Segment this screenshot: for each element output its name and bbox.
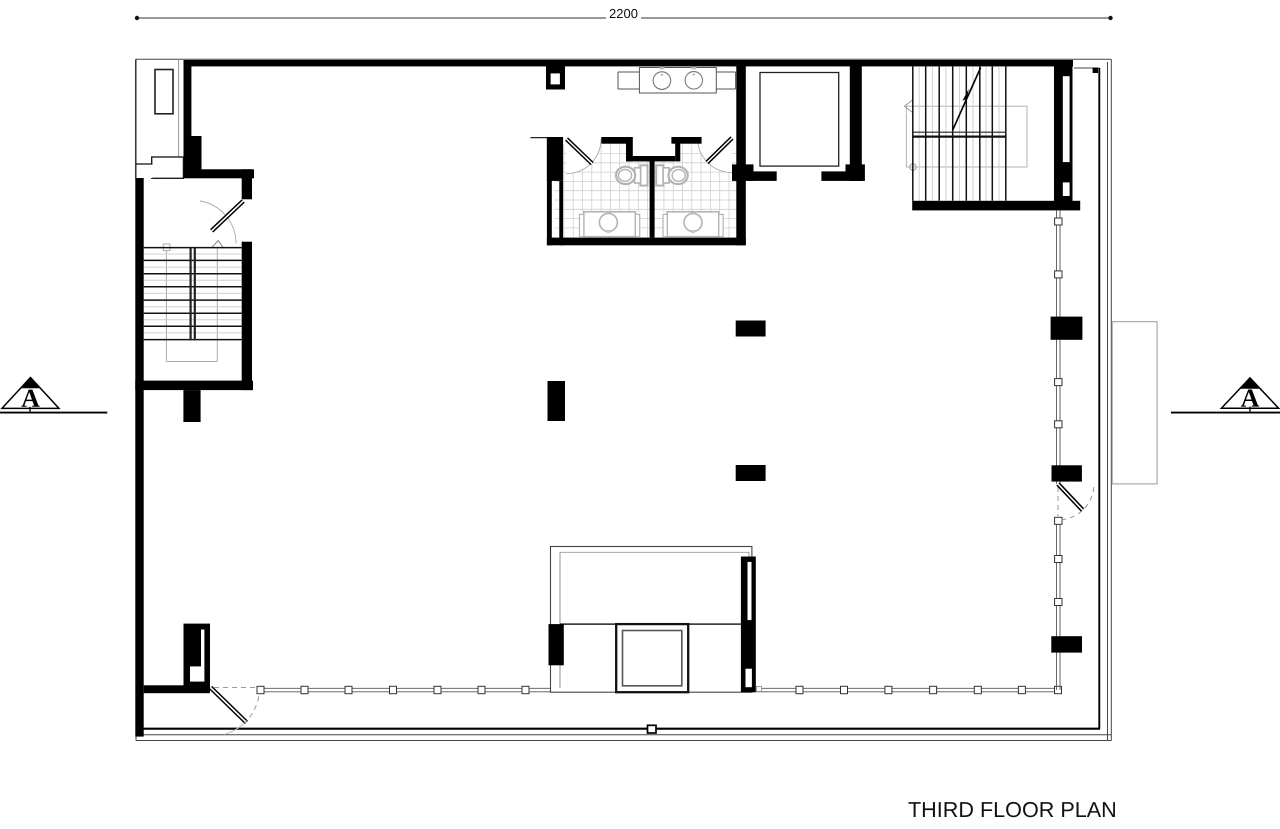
svg-text:THIRD FLOOR PLAN: THIRD FLOOR PLAN [908, 797, 1117, 822]
svg-text:2200: 2200 [609, 6, 638, 21]
